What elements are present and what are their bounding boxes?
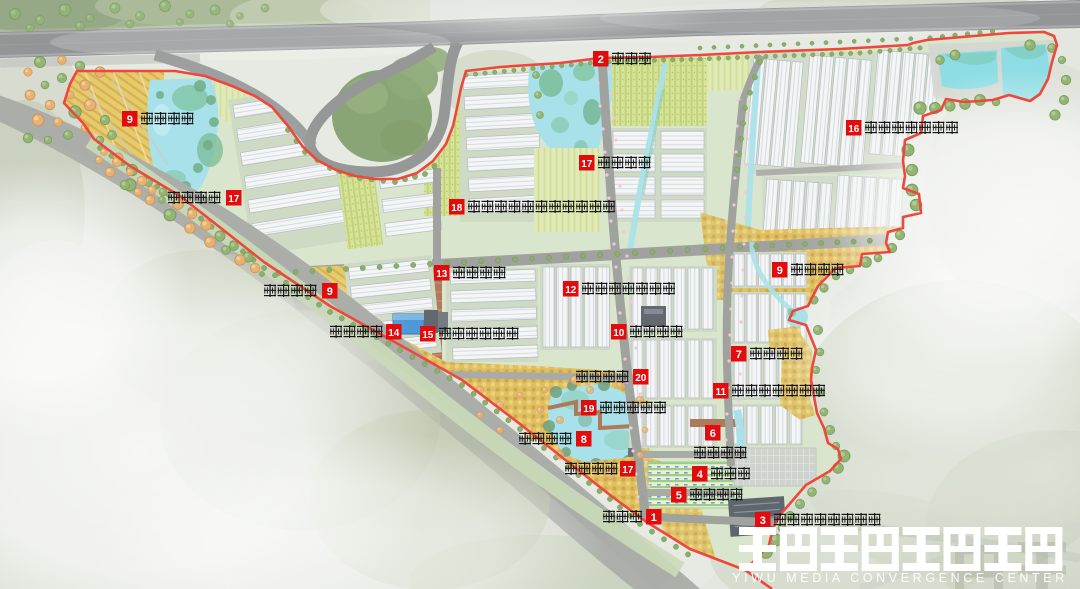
svg-text:14: 14	[388, 328, 400, 339]
svg-text:10: 10	[613, 328, 625, 339]
svg-text:11: 11	[715, 387, 726, 398]
svg-text:13: 13	[436, 269, 448, 280]
svg-text:8: 8	[581, 434, 587, 446]
svg-text:9: 9	[327, 286, 333, 298]
svg-text:3: 3	[760, 515, 766, 527]
svg-text:17: 17	[228, 194, 240, 205]
svg-text:1: 1	[651, 512, 657, 524]
svg-text:4: 4	[697, 469, 704, 481]
svg-text:20: 20	[635, 373, 647, 384]
svg-text:12: 12	[565, 285, 577, 296]
svg-text:YIWU MEDIA CONVERGENCE CENTER: YIWU MEDIA CONVERGENCE CENTER	[732, 571, 1068, 585]
svg-text:6: 6	[710, 428, 716, 440]
svg-text:2: 2	[598, 54, 604, 66]
svg-text:18: 18	[451, 203, 463, 214]
svg-text:16: 16	[848, 124, 860, 135]
svg-text:17: 17	[622, 465, 634, 476]
svg-text:7: 7	[736, 349, 742, 361]
svg-text:9: 9	[127, 114, 133, 126]
svg-text:9: 9	[777, 265, 783, 277]
svg-text:15: 15	[422, 330, 434, 341]
svg-text:17: 17	[581, 159, 593, 170]
svg-text:5: 5	[676, 490, 682, 502]
svg-text:19: 19	[583, 404, 595, 415]
